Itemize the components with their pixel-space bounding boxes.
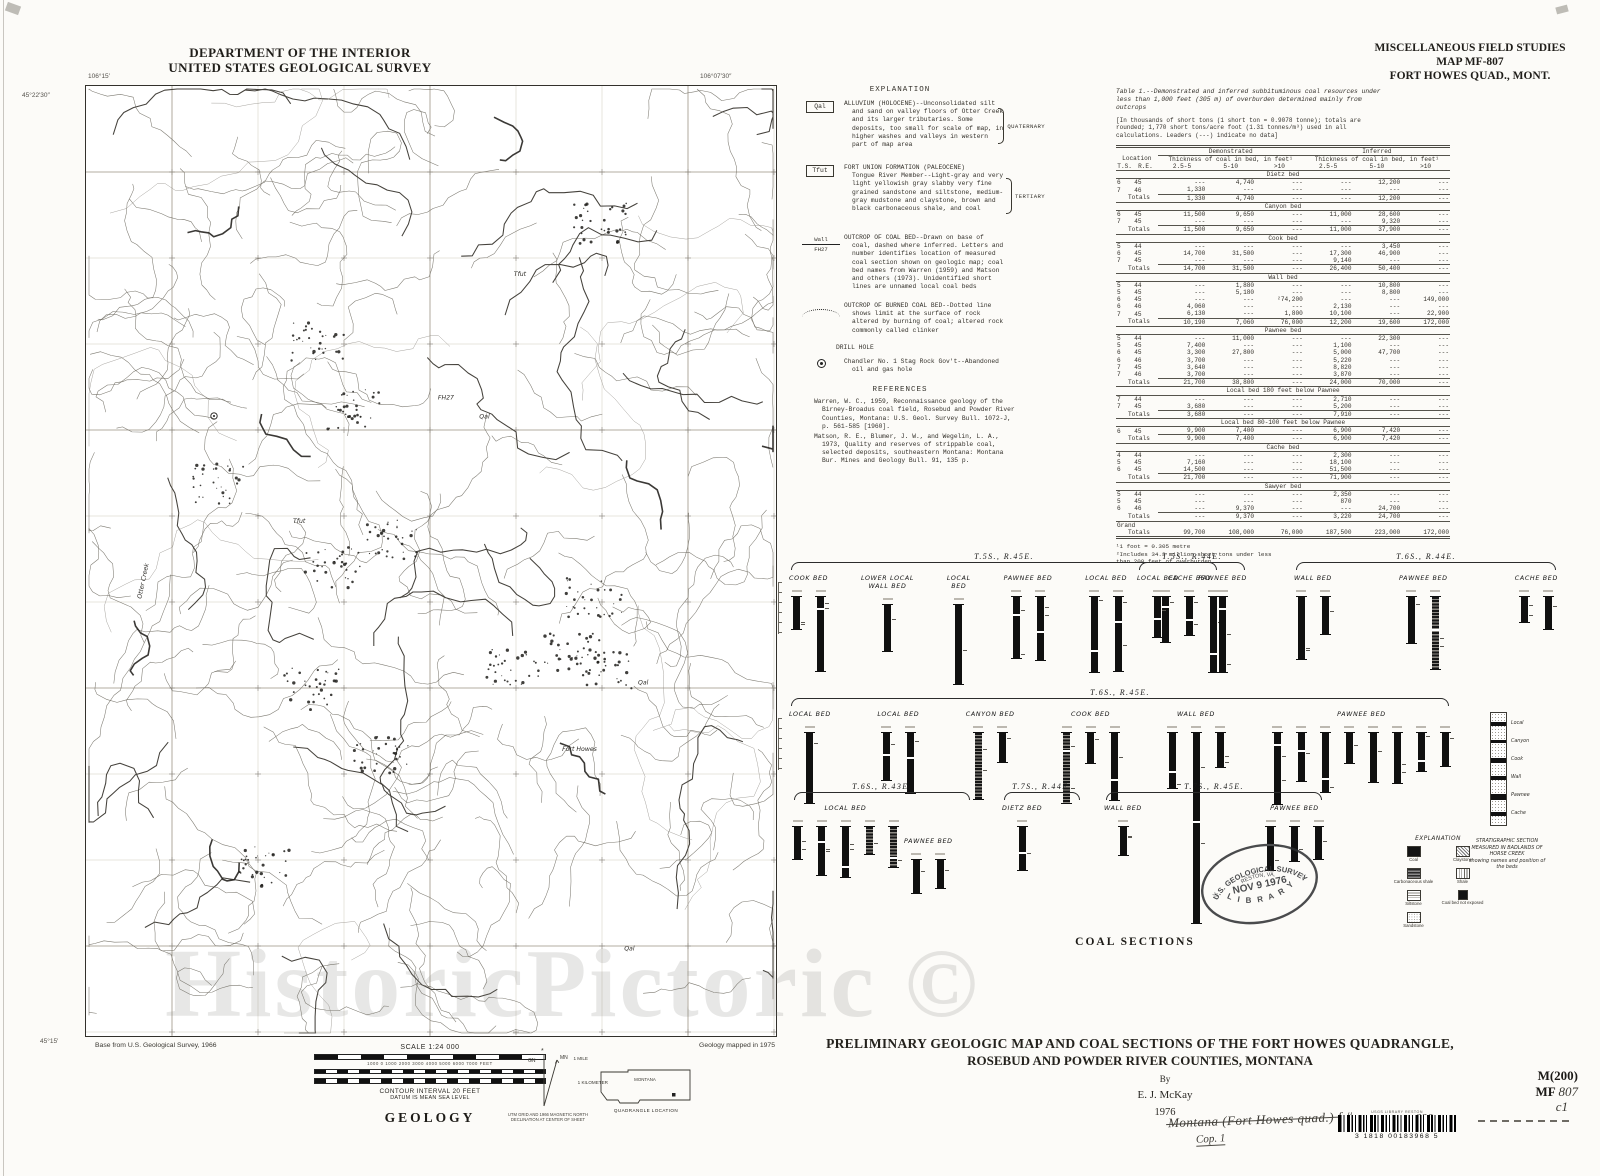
contour-line	[165, 786, 322, 924]
table-row: 7456,130---1,80010,100---22,900	[1116, 310, 1450, 318]
bar-cap	[1152, 637, 1163, 638]
clinker-speckle	[598, 639, 600, 641]
clinker-speckle	[376, 753, 377, 754]
clinker-speckle	[369, 531, 372, 534]
clinker-speckle	[593, 657, 596, 660]
contour-line	[344, 293, 398, 340]
coal-bed: WALL BED	[1294, 575, 1332, 660]
coal-section-column	[1113, 590, 1124, 672]
clinker-speckle	[403, 557, 406, 560]
clinker-speckle	[360, 767, 363, 770]
table-row: 544------------3,450---	[1116, 242, 1450, 250]
coal-section-bar	[1521, 597, 1528, 622]
legend-label: Sandstone	[1392, 924, 1435, 929]
clinker-speckle	[305, 325, 307, 327]
agency-line2: UNITED STATES GEOLOGICAL SURVEY	[110, 61, 490, 76]
section-name-row: Canyon bed	[1116, 202, 1450, 210]
coal-section-bar	[1298, 597, 1305, 659]
clinker-speckle	[195, 501, 197, 503]
clinker-speckle	[614, 664, 617, 667]
section-id-label	[1543, 590, 1553, 592]
section-name-row: Sawyer bed	[1116, 482, 1450, 490]
clinker-speckle	[533, 661, 535, 663]
quad-location-caption: QUADRANGLE LOCATION	[598, 1108, 694, 1113]
clinker-speckle	[356, 744, 358, 746]
clinker-speckle	[585, 637, 588, 640]
bar-cap	[1011, 658, 1022, 659]
contour-line	[137, 308, 190, 399]
clinker-speckle	[324, 571, 327, 574]
table-host: DemonstratedInferredLocationThickness of…	[1116, 145, 1450, 539]
clinker-speckle	[317, 669, 319, 671]
clinker-speckle	[597, 589, 600, 592]
coal-bed-name: DIETZ BED	[1002, 805, 1042, 813]
clinker-speckle	[373, 769, 376, 772]
clinker-speckle	[316, 686, 318, 688]
thickness-tick	[1440, 646, 1444, 647]
clinker-speckle	[588, 648, 591, 651]
clinker-speckle	[319, 331, 321, 333]
clinker-speckle	[556, 669, 559, 672]
clinker-speckle	[283, 850, 285, 852]
clinker-speckle	[392, 771, 394, 773]
section-id-label	[954, 598, 964, 600]
clinker-speckle	[619, 228, 621, 230]
clinker-speckle	[577, 651, 579, 653]
contour-line	[726, 901, 773, 1000]
contour-line	[323, 810, 394, 908]
stream-line	[582, 282, 743, 400]
contour-line	[236, 568, 316, 613]
clinker-speckle	[583, 647, 585, 649]
clinker-speckle	[377, 551, 380, 554]
bed-row: LOCAL BEDPAWNEE BED	[1133, 575, 1251, 673]
magnetic-north-label: MN	[560, 1055, 568, 1061]
section-id-label	[805, 726, 815, 728]
thickness-tick	[826, 851, 830, 852]
thickness-tick	[1450, 738, 1454, 739]
coal-bed-name: CACHE BED	[1515, 575, 1558, 583]
clinker-speckle	[345, 569, 347, 571]
contour-line	[215, 616, 256, 673]
clinker-speckle	[386, 550, 388, 552]
contour-line	[156, 398, 231, 441]
coal-section-column	[792, 820, 803, 860]
map-text-label: Qal	[638, 680, 649, 687]
contour-line	[378, 530, 445, 626]
clinker-speckle	[200, 485, 202, 487]
clinker-speckle	[293, 691, 295, 693]
coal-bed: COOK BED	[789, 575, 828, 672]
clinker-speckle	[409, 534, 412, 537]
clinker-speckle	[203, 464, 205, 466]
outcrop-line-icon	[802, 244, 840, 245]
coal-section-column	[1089, 590, 1100, 673]
thickness-tick	[825, 608, 829, 609]
clinker-speckle	[491, 649, 492, 650]
strat-bed-label: Wall	[1511, 775, 1521, 780]
clinker-speckle	[342, 334, 344, 336]
bar-cap	[1392, 783, 1403, 784]
section-name-row: Local bed 180 feet below Pawnee	[1116, 387, 1450, 395]
state-label: MONTANA	[634, 1077, 656, 1082]
thickness-tick	[1099, 600, 1103, 601]
section-totals-row: Totals14,70031,500---26,40050,400---	[1116, 265, 1450, 273]
clinker-speckle	[506, 680, 508, 682]
clinker-speckle	[581, 232, 583, 234]
clinker-speckle	[292, 668, 293, 669]
clinker-speckle	[603, 219, 606, 222]
clinker-speckle	[347, 578, 348, 579]
stream-line	[638, 216, 773, 239]
clinker-speckle	[362, 748, 364, 750]
era-bracket-tertiary: TERTIARY	[1006, 178, 1045, 214]
scan-artifact	[5, 2, 21, 15]
clinker-speckle	[312, 694, 314, 696]
clinker-speckle	[613, 603, 614, 604]
clinker-speckle	[325, 335, 326, 336]
coal-section-column	[888, 820, 899, 868]
table-subheader-row: LocationThickness of coal in bed, in fee…	[1116, 155, 1450, 163]
clinker-speckle	[549, 633, 552, 636]
section-id-label	[1089, 590, 1099, 592]
thickness-tick	[1378, 751, 1382, 752]
clinker-speckle	[260, 884, 263, 887]
clinker-speckle	[537, 669, 540, 672]
clinker-speckle	[407, 745, 408, 746]
coal-section-column	[816, 820, 827, 876]
clinker-speckle	[213, 482, 215, 484]
clinker-speckle	[607, 231, 610, 234]
contour-interval-note: CONTOUR INTERVAL 20 FEET	[300, 1088, 560, 1095]
map-text-label: Tfut	[514, 270, 527, 278]
bar-cap	[1440, 766, 1451, 767]
clinker-speckle	[356, 421, 359, 424]
legend-item: Sandstone	[1392, 912, 1435, 929]
unit-symbol-box: Qal	[806, 101, 834, 113]
section-id-label	[1320, 726, 1330, 728]
clinker-speckle	[298, 337, 300, 339]
coal-bed-sections	[1137, 590, 1179, 638]
section-id-label	[1320, 590, 1330, 592]
clinker-speckle	[321, 566, 323, 568]
index-contour	[763, 891, 773, 978]
coal-bed: CACHE BED	[1515, 575, 1558, 630]
section-name-row: Cook bed	[1116, 234, 1450, 242]
clinker-speckle	[335, 351, 337, 353]
coal-bed: PAWNEE BED	[1198, 575, 1247, 673]
table-columns-row: T.S.R.E.2.5-55-10>102.5-55-10>10	[1116, 163, 1450, 171]
parting-gap	[817, 608, 824, 610]
clinker-speckle	[590, 599, 593, 602]
contour-line	[289, 531, 378, 563]
map-explanation: EXPLANATION Qal ALLUVIUM (HOLOCENE)--Unc…	[800, 86, 1045, 466]
legend-item: Carbonaceous shale	[1392, 868, 1435, 885]
clinker-speckle	[526, 654, 527, 655]
coal-section-bar	[890, 827, 897, 867]
coal-section-column	[1406, 590, 1417, 644]
township-label: T.6S., R.43E.	[788, 782, 976, 791]
legend-swatch-sand-icon	[1407, 912, 1421, 923]
clinker-speckle	[587, 654, 588, 655]
clinker-speckle	[245, 863, 247, 865]
clinker-speckle	[325, 671, 327, 673]
clinker-speckle	[595, 682, 598, 685]
coal-section-column	[1430, 590, 1441, 670]
clinker-speckle	[285, 860, 287, 862]
bar-cap	[1191, 923, 1202, 924]
thickness-tick	[1306, 648, 1310, 649]
contour-line	[398, 962, 530, 1033]
thickness-tick	[802, 849, 806, 850]
contour-line	[297, 964, 339, 1033]
burned-bed-line	[260, 414, 311, 456]
clinker-speckle	[370, 417, 371, 418]
stamp-star-left: ☆	[1211, 890, 1220, 900]
geologic-map: Otter CreekQalQalQalTfutTfutFort HowesFH…	[85, 85, 777, 1037]
coal-bed-sections	[1004, 590, 1053, 661]
clinker-speckle	[603, 652, 605, 654]
clinker-speckle	[630, 687, 632, 689]
bracket-shape	[1006, 178, 1012, 214]
section-id-label	[1017, 820, 1027, 822]
coal-section-column	[1085, 726, 1096, 764]
symbol-description: OUTCROP OF BURNED COAL BED--Dotted line …	[844, 302, 1004, 335]
clinker-speckle	[335, 672, 338, 675]
clinker-speckle	[504, 660, 506, 662]
clinker-speckle	[255, 857, 257, 859]
grand-label-row: Grand	[1116, 521, 1450, 529]
coal-section-bar	[1087, 733, 1094, 763]
clinker-speckle	[621, 209, 624, 212]
legend-swatch-silt-icon	[1407, 890, 1421, 901]
parting-gap	[1019, 852, 1026, 854]
clinker-speckle	[510, 670, 511, 671]
section-totals-row: Totals21,70038,800---24,00070,000---	[1116, 379, 1450, 387]
table-row: 745------------9,320---	[1116, 218, 1450, 226]
clinker-speckle	[251, 875, 254, 878]
thickness-tick	[825, 603, 829, 604]
clinker-speckle	[337, 427, 339, 429]
sheet-title-line1: PRELIMINARY GEOLOGIC MAP AND COAL SECTIO…	[720, 1036, 1560, 1052]
table-row: 6459,9007,400---6,9007,420---	[1116, 427, 1450, 435]
contour-line	[492, 436, 562, 465]
stratigraphic-caption: STRATIGRAPHIC SECTION MEASURED IN BADLAN…	[1452, 838, 1562, 871]
drill-hole-title: DRILL HOLE	[836, 344, 996, 352]
map-text-label: Qal	[624, 946, 635, 953]
clinker-speckle	[229, 502, 231, 504]
section-id-label	[1118, 820, 1128, 822]
clinker-speckle	[387, 537, 389, 539]
contour-line	[89, 359, 184, 395]
contour-line	[232, 137, 270, 195]
clinker-speckle	[573, 606, 575, 608]
clinker-speckle	[337, 350, 340, 353]
contour-line	[193, 512, 242, 553]
coal-resources-table-block: Table 1.--Demonstrated and inferred subb…	[1116, 88, 1450, 566]
table-row: 545---------870------	[1116, 498, 1450, 505]
clinker-speckle	[215, 462, 218, 465]
clinker-speckle	[342, 392, 345, 395]
clinker-speckle	[535, 662, 537, 664]
coal-bed: LOWER LOCAL WALL BED	[861, 575, 914, 652]
table-row: 645------²74,200------149,000	[1116, 296, 1450, 303]
coal-township-group: PAWNEE BED	[900, 838, 988, 894]
clinker-speckle	[493, 665, 495, 667]
agency-line1: DEPARTMENT OF THE INTERIOR	[110, 46, 490, 61]
thickness-tick	[1095, 739, 1099, 740]
table-row: 545---5,180------8,800---	[1116, 289, 1450, 296]
references-title: REFERENCES	[800, 386, 1000, 394]
barcode-number: 3 1818 00183968 5	[1338, 1133, 1456, 1140]
table-row: 5457,160------18,100------	[1116, 459, 1450, 466]
grid-north-label: GN	[528, 1058, 536, 1064]
bar-cap	[1296, 659, 1307, 660]
clinker-speckle	[353, 415, 356, 418]
clinker-speckle	[293, 340, 294, 341]
coal-bed: LOCAL BED	[1137, 575, 1179, 638]
scan-artifact	[1555, 5, 1568, 15]
township-label: T.5S., R.44E.	[1133, 552, 1251, 561]
table-header-row: DemonstratedInferred	[1116, 146, 1450, 155]
thickness-tick	[891, 744, 895, 745]
coal-bed-sections	[904, 853, 953, 894]
contour-line	[553, 253, 570, 344]
coal-bed-sections	[861, 598, 914, 652]
clinker-speckle	[616, 678, 617, 679]
bar-cap	[791, 629, 802, 630]
section-id-label	[1113, 590, 1123, 592]
contour-line	[269, 724, 342, 759]
clinker-speckle	[341, 551, 344, 554]
township-label: T.7S., R.45E.	[1100, 782, 1328, 791]
clinker-speckle	[309, 685, 311, 687]
section-id-label	[1519, 590, 1529, 592]
coal-bed: DIETZ BED	[1002, 805, 1042, 871]
table-row: 7453,640------8,820------	[1116, 364, 1450, 371]
index-contour	[293, 747, 445, 815]
contour-line	[598, 598, 651, 634]
bar-cap	[864, 854, 875, 855]
strat-coal-band	[1491, 812, 1506, 816]
thickness-tick	[1045, 615, 1049, 616]
clinker-speckle	[347, 395, 348, 396]
clinker-speckle	[416, 529, 417, 530]
bar-cap	[935, 888, 946, 889]
parting-gap	[1091, 650, 1098, 652]
map-text-label: Otter Creek	[135, 562, 150, 599]
clinker-speckle	[578, 633, 581, 636]
clinker-speckle	[589, 669, 591, 671]
clinker-speckle	[327, 672, 328, 673]
section-id-label	[1086, 726, 1096, 728]
clinker-speckle	[528, 675, 530, 677]
clinker-speckle	[317, 551, 319, 553]
clinker-speckle	[354, 570, 356, 572]
clinker-speckle	[257, 855, 258, 856]
clinker-speckle	[586, 684, 589, 687]
clinker-speckle	[237, 478, 240, 481]
clinker-speckle	[334, 333, 337, 336]
contour-line	[399, 494, 477, 613]
clinker-speckle	[245, 859, 247, 861]
coal-section-bar	[794, 827, 801, 859]
contour-line	[688, 457, 739, 561]
coal-township-group: T.6S., R.44E.WALL BEDPAWNEE BEDCACHE BED	[1290, 552, 1562, 670]
map-text-label: FH27	[438, 395, 454, 402]
legend-item: Siltstone	[1392, 890, 1435, 907]
clinker-speckle	[597, 654, 600, 657]
parting-gap	[1111, 779, 1118, 781]
clinker-speckle	[415, 551, 417, 553]
clinker-speckle	[298, 672, 301, 675]
thickness-tick	[1021, 654, 1025, 655]
clinker-speckle	[504, 679, 506, 681]
coal-section-bar	[842, 827, 849, 877]
coal-bed-name: WALL BED	[1104, 805, 1142, 813]
bar-cap	[881, 780, 892, 781]
era-label: TERTIARY	[1015, 193, 1045, 200]
contour-line	[498, 724, 579, 761]
clinker-speckle	[198, 496, 200, 498]
library-barcode: USGS LIBRARY RESTON 3 1818 00183968 5	[1338, 1110, 1456, 1140]
bar-cap	[953, 684, 964, 685]
legend-coal-outcrop: Wall FH27 OUTCROP OF COAL BED--Drawn on …	[800, 234, 1045, 296]
clinker-speckle	[342, 411, 344, 413]
contour-line	[334, 89, 435, 136]
copy-number: c1	[1508, 1099, 1578, 1115]
parting-gap	[907, 757, 914, 759]
coal-section-column	[1320, 590, 1331, 635]
clinker-speckle	[625, 684, 627, 686]
thickness-tick	[921, 871, 925, 872]
author-name: E. J. McKay	[1095, 1089, 1235, 1101]
clinker-speckle	[318, 347, 320, 349]
clinker-speckle	[306, 552, 308, 554]
legend-swatch-carb-icon	[1407, 868, 1421, 879]
section-id-label	[889, 820, 899, 822]
strat-coal-band	[1491, 722, 1506, 726]
clinker-speckle	[386, 555, 388, 557]
clinker-speckle	[283, 674, 286, 677]
corner-latitude-label: 45°22′30″	[22, 92, 50, 99]
coal-bed-name: LOCAL BED	[792, 805, 899, 813]
parting-gap	[1115, 621, 1122, 623]
contour-line	[178, 853, 254, 976]
clinker-speckle	[286, 672, 288, 674]
feet-ruler	[778, 582, 782, 634]
clinker-speckle	[369, 553, 370, 554]
contour-line	[301, 965, 389, 1015]
clinker-speckle	[580, 226, 583, 229]
section-id-label	[1153, 590, 1163, 592]
coal-township-group: T.7S., R.44E.DIETZ BED	[998, 782, 1086, 871]
clinker-speckle	[381, 549, 382, 550]
clinker-speckle	[339, 409, 342, 412]
section-id-label	[1266, 820, 1276, 822]
stream-line	[540, 327, 646, 490]
coal-section-column	[791, 590, 802, 630]
contour-line	[646, 513, 690, 574]
contour-line	[203, 640, 279, 679]
clinker-speckle	[608, 615, 610, 617]
clinker-speckle	[347, 586, 350, 589]
clinker-speckle	[567, 667, 570, 670]
contour-line	[410, 888, 456, 1022]
section-totals-row: Totals11,5009,650---11,00037,900---	[1116, 226, 1450, 234]
clinker-speckle	[194, 468, 196, 470]
coal-section-bar	[1013, 597, 1020, 658]
